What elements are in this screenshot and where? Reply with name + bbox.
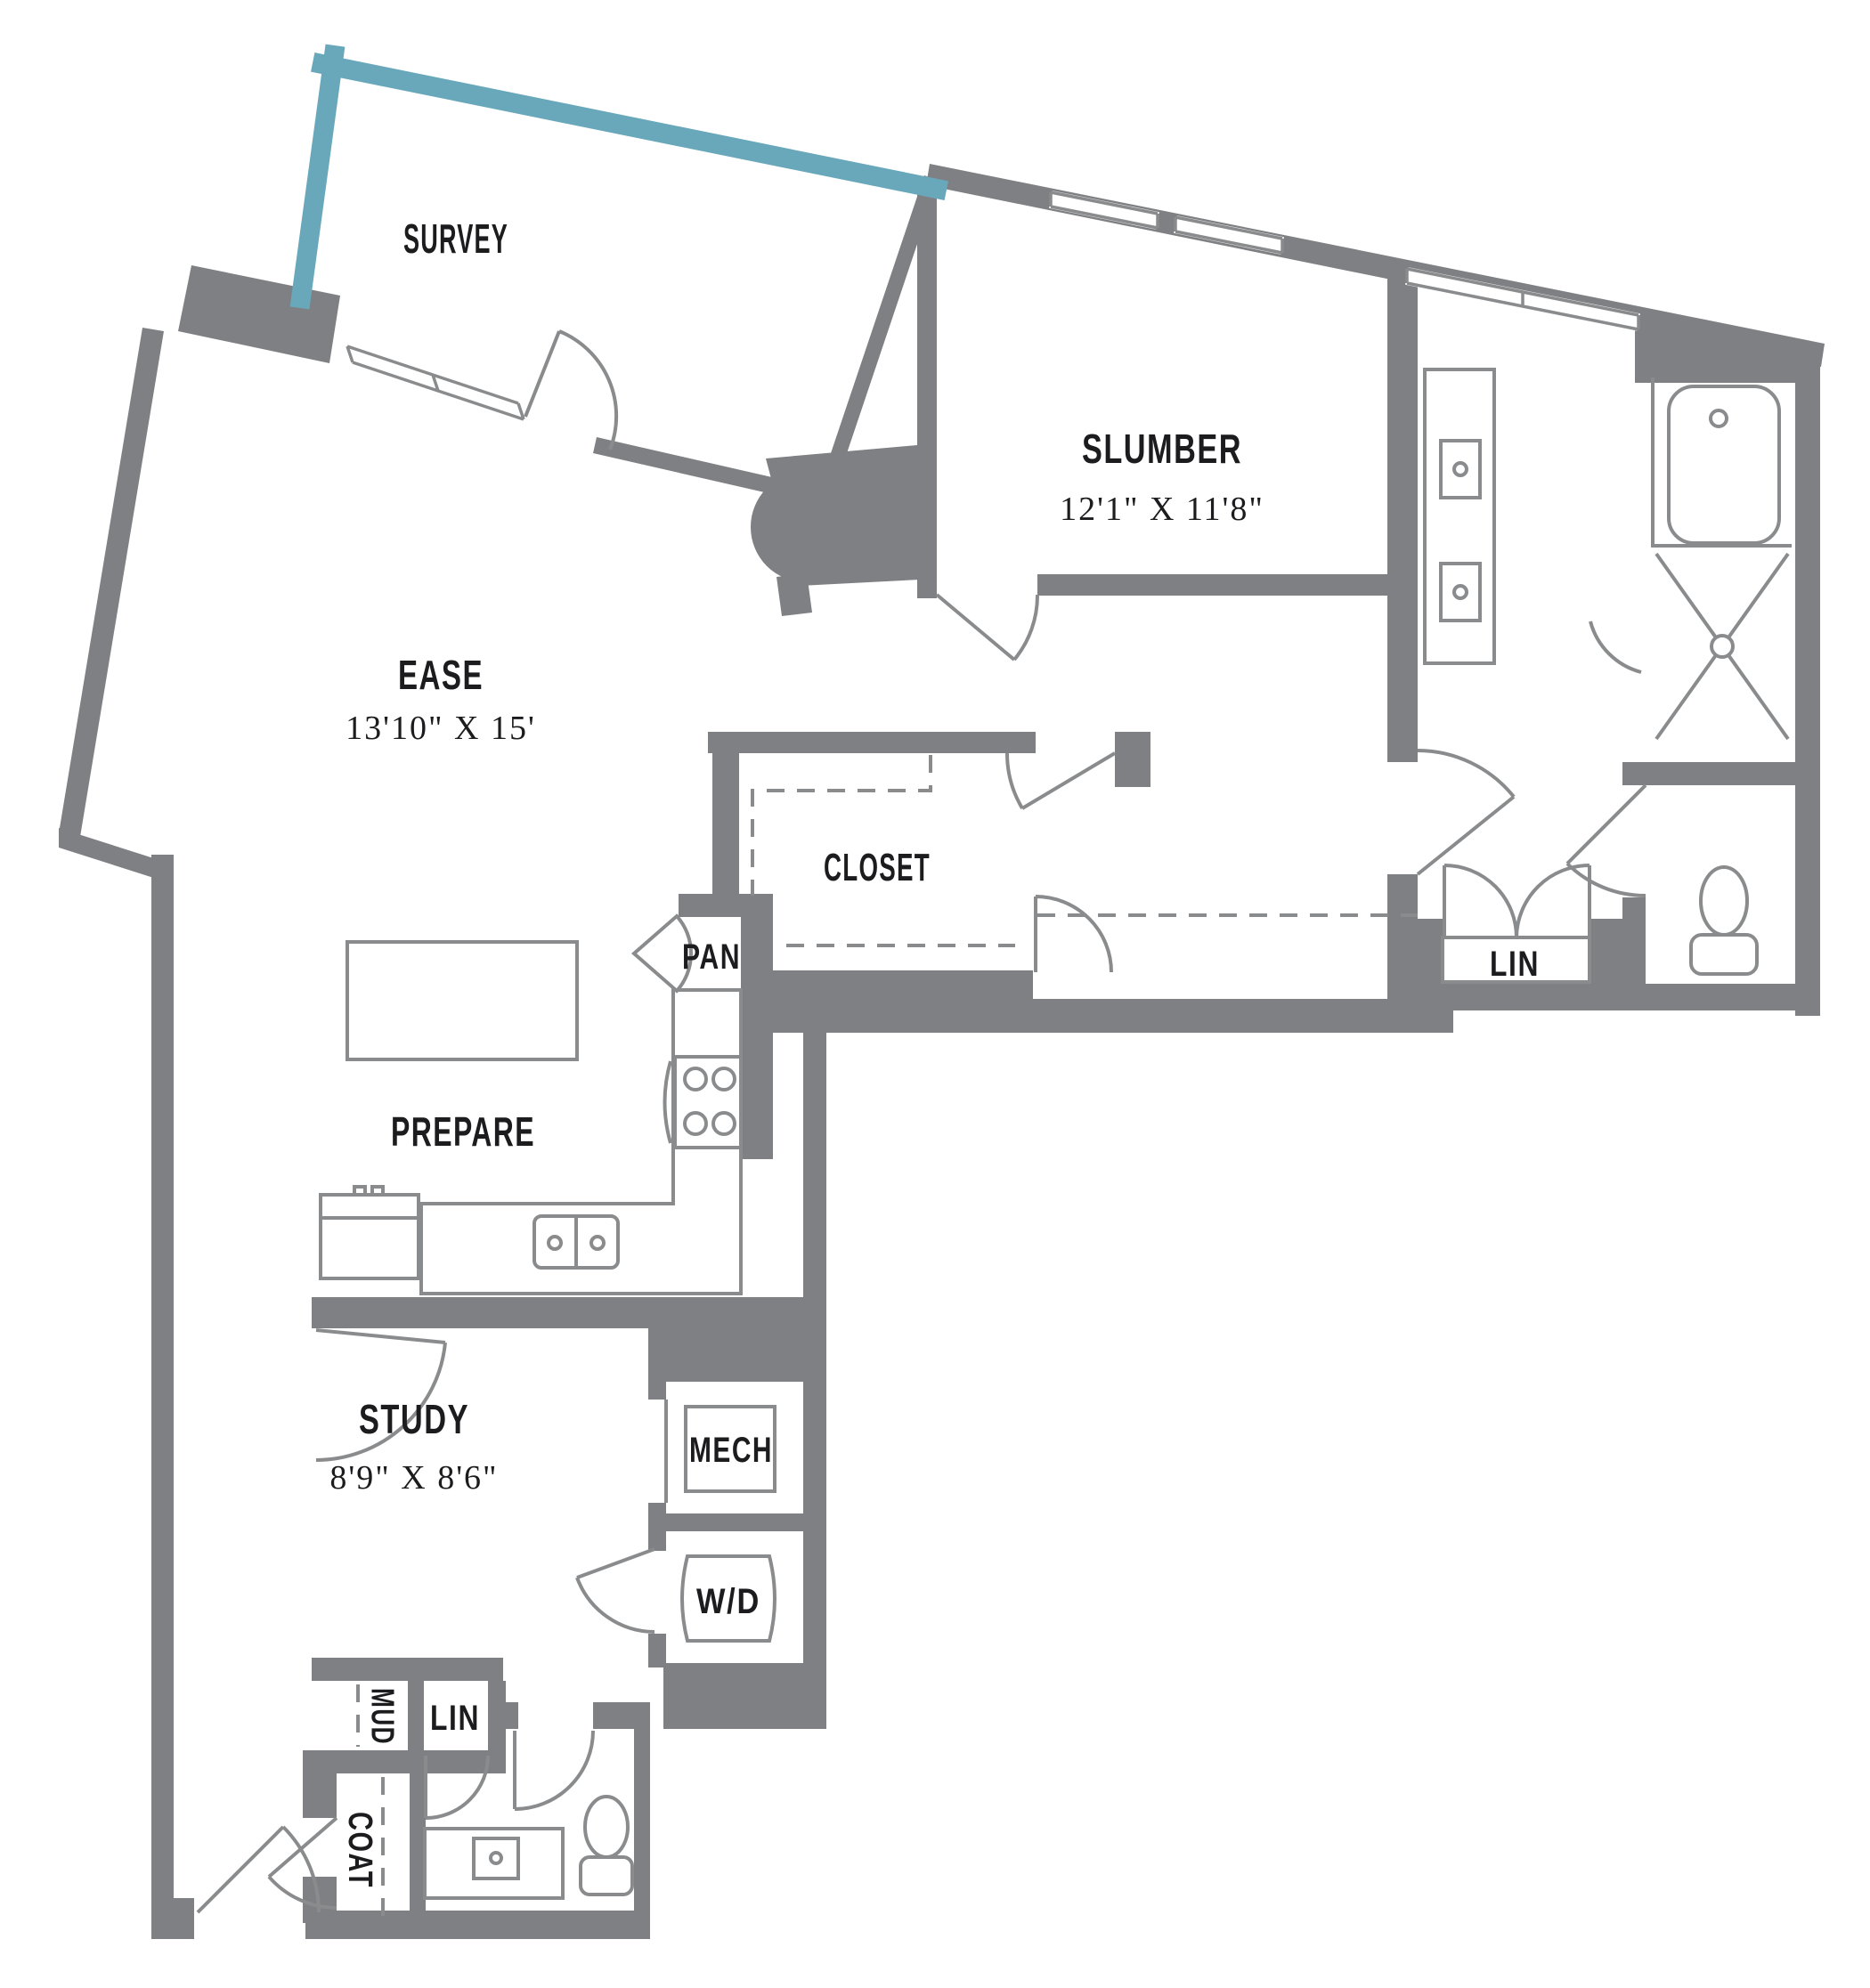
burner-top-right [713,1068,735,1090]
walls [59,164,1825,1939]
burner-bottom-left [685,1113,706,1134]
window-frames [347,192,1638,419]
floor-plan-svg: SURVEY SLUMBER 12'1" X 11'8" EASE 13'10"… [0,0,1870,1988]
burner-top-left [685,1068,706,1090]
shower-drain [1711,636,1733,657]
closet-label-coat: COAT [341,1812,378,1888]
closet-rod-dashes [358,755,1418,1916]
closet-label-wd: W/D [696,1582,760,1621]
room-label-closet: CLOSET [824,846,931,889]
structural-column [751,472,861,582]
fixtures [321,369,1792,1898]
burner-bottom-right [713,1113,735,1134]
room-dims-slumber: 12'1" X 11'8" [1060,491,1264,528]
fixture-outlines [321,369,1792,1898]
wall-segments [59,164,1825,1939]
room-dims-ease: 13'10" X 15' [346,710,536,747]
vanity-sink-drain-2 [1454,586,1467,598]
powder-sink-drain [491,1853,501,1863]
toilet-bowl-bath [1701,867,1747,935]
toilet-tank-bath [1691,935,1757,974]
closet-label-mech: MECH [689,1431,773,1470]
closet-label-lin-bath: LIN [1490,945,1540,984]
bathtub [1669,386,1779,543]
closet-label-lin-hall: LIN [430,1699,480,1738]
room-label-ease: EASE [398,652,484,698]
room-label-study: STUDY [359,1396,469,1442]
windows [347,192,1638,419]
vanity-sink-drain-1 [1454,463,1467,475]
toilet-tank-powder [581,1857,632,1895]
floor-plan-canvas: SURVEY SLUMBER 12'1" X 11'8" EASE 13'10"… [0,0,1870,1988]
balcony-edge [301,55,937,298]
room-dims-study: 8'9" X 8'6" [329,1459,498,1497]
room-label-slumber: SLUMBER [1082,426,1242,472]
room-label-prepare: PREPARE [391,1108,535,1155]
room-label-survey: SURVEY [403,215,508,262]
closet-label-mud: MUD [365,1688,402,1745]
toilet-bowl-powder [585,1797,628,1857]
closet-label-pan: PAN [682,937,741,977]
